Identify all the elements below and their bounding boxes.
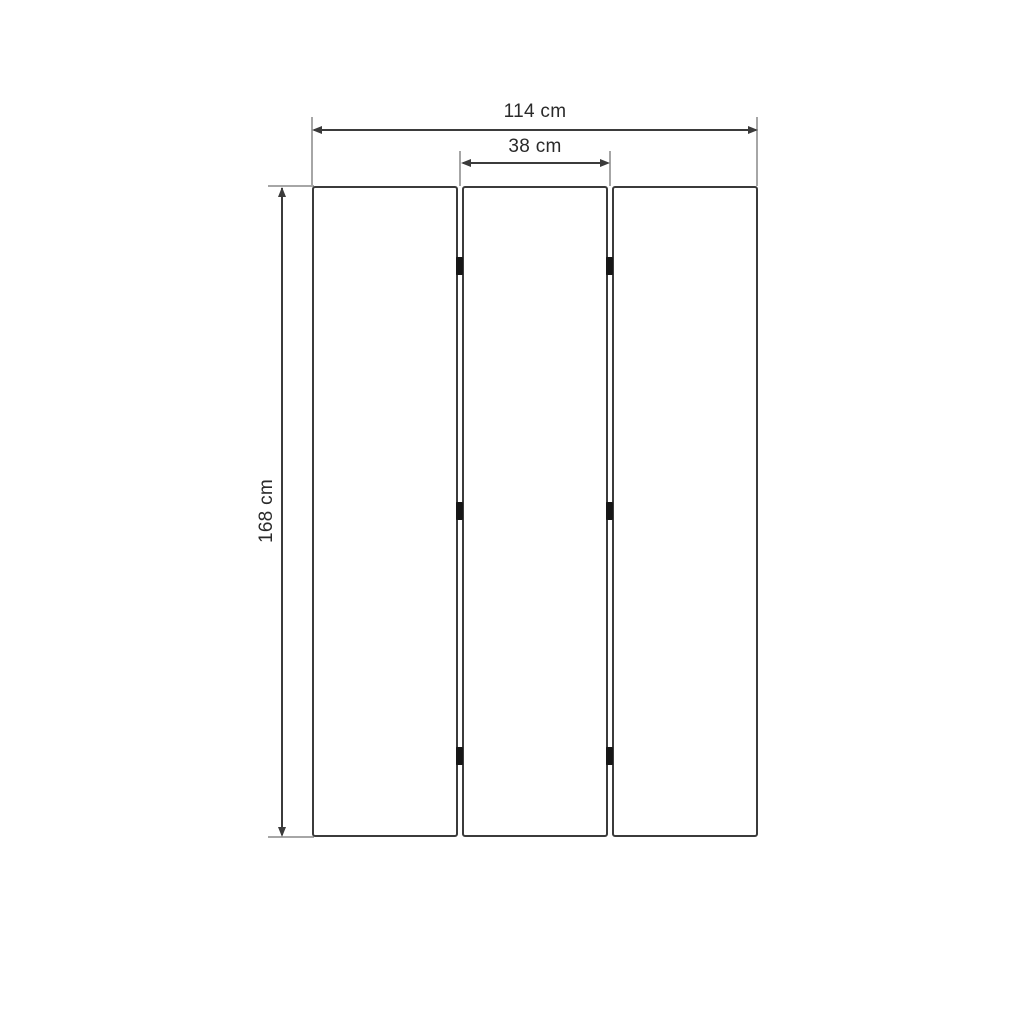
screen-panel-right: [612, 186, 758, 837]
extension-line-height-bottom: [268, 836, 314, 838]
dimension-line-panel-width: [463, 162, 607, 164]
dimension-label-panel-width: 38 cm: [435, 136, 635, 158]
arrowhead-height-top-icon: [278, 187, 286, 197]
hinge-left-seam-top: [456, 257, 463, 275]
dimension-label-total-width: 114 cm: [435, 101, 635, 123]
hinge-right-seam-bottom: [606, 747, 613, 765]
arrowhead-total-width-left-icon: [312, 126, 322, 134]
arrowhead-height-bottom-icon: [278, 827, 286, 837]
arrowhead-total-width-right-icon: [748, 126, 758, 134]
hinge-right-seam-top: [606, 257, 613, 275]
hinge-left-seam-bottom: [456, 747, 463, 765]
hinge-left-seam-middle: [456, 502, 463, 520]
extension-line-height-top: [268, 185, 314, 187]
dimension-line-height: [281, 188, 283, 835]
dimension-line-total-width: [314, 129, 756, 131]
screen-panel-left: [312, 186, 458, 837]
arrowhead-panel-width-right-icon: [600, 159, 610, 167]
hinge-right-seam-middle: [606, 502, 613, 520]
screen-panel-middle: [462, 186, 608, 837]
dimension-drawing-canvas: 114 cm 38 cm 168 cm: [0, 0, 1024, 1024]
arrowhead-panel-width-left-icon: [461, 159, 471, 167]
